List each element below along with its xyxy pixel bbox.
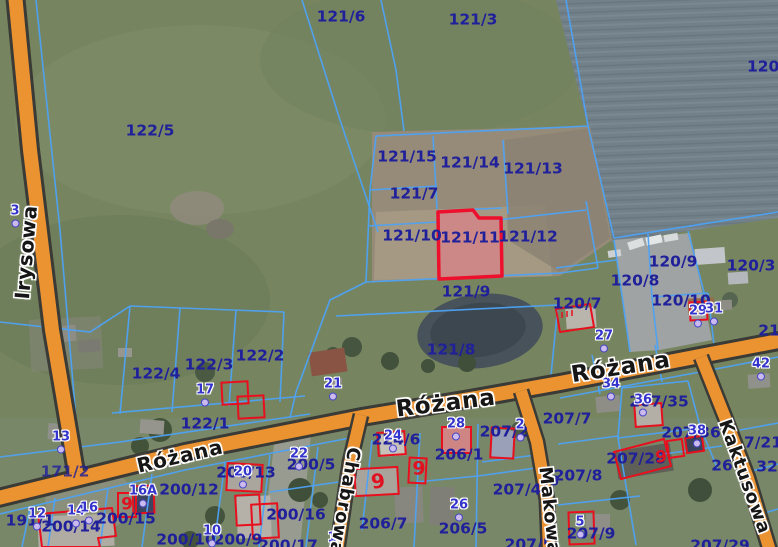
parcel-label[interactable]: 120/8 <box>611 273 660 289</box>
address-point-dot <box>693 440 701 448</box>
parcel-label[interactable]: 171/2 <box>41 464 90 480</box>
house-number-badge[interactable]: 16A <box>129 485 157 498</box>
house-number-badge[interactable]: 2 <box>515 419 524 432</box>
parcel-label[interactable]: 121/12 <box>498 229 558 245</box>
parcel-label[interactable]: 120/3 <box>727 258 776 274</box>
parcel-label[interactable]: 122/5 <box>126 123 175 139</box>
address-point-dot <box>239 481 247 489</box>
red-building-label: 9 <box>121 497 133 514</box>
parcel-label[interactable]: 121/10 <box>382 228 442 244</box>
address-point-dot <box>329 393 337 401</box>
parcel-label[interactable]: 207/7 <box>543 411 592 427</box>
parcel-label[interactable]: 207/9 <box>567 526 616 542</box>
parcel-label[interactable]: 7/21 <box>744 435 778 451</box>
house-number-badge[interactable]: 20 <box>234 466 252 479</box>
parcel-label[interactable]: 122/1 <box>181 416 230 432</box>
house-number-badge[interactable]: 27 <box>595 330 613 343</box>
parcel-label[interactable]: 21 <box>758 323 778 339</box>
cadastral-map-viewport[interactable]: 121/6121/3120/122/5121/15121/14121/13121… <box>0 0 778 547</box>
address-point-dot <box>33 523 41 531</box>
address-point-dot <box>201 399 209 407</box>
red-building-label: 9 <box>655 450 667 467</box>
address-point-dot <box>139 500 147 508</box>
parcel-label[interactable]: 206/7 <box>359 516 408 532</box>
address-point-dot <box>576 531 584 539</box>
address-point-dot <box>295 463 303 471</box>
parcel-label[interactable]: 121/15 <box>377 149 437 165</box>
address-point-dot <box>72 520 80 528</box>
parcel-label[interactable]: 120/7 <box>553 296 602 312</box>
house-number-badge[interactable]: 38 <box>688 425 706 438</box>
parcel-label[interactable]: 122/2 <box>236 348 285 364</box>
map-labels-layer: 121/6121/3120/122/5121/15121/14121/13121… <box>0 0 778 547</box>
house-number-badge[interactable]: 28 <box>447 418 465 431</box>
address-point-dot <box>208 540 216 547</box>
parcel-label[interactable]: 200/17 <box>258 538 318 547</box>
parcel-label[interactable]: 207/8 <box>554 468 603 484</box>
parcel-label[interactable]: 206/1 <box>435 447 484 463</box>
house-number-badge[interactable]: 31 <box>705 303 723 316</box>
parcel-label[interactable]: 200/12 <box>159 482 219 498</box>
street-label: Różana <box>570 349 673 387</box>
parcel-label[interactable]: 122/4 <box>132 366 181 382</box>
house-number-badge[interactable]: 12 <box>28 508 46 521</box>
parcel-label[interactable]: 200/16 <box>266 507 326 523</box>
parcel-label[interactable]: 121/7 <box>390 186 439 202</box>
house-number-badge[interactable]: 16 <box>80 502 98 515</box>
parcel-label[interactable]: 121/14 <box>440 155 500 171</box>
address-point-dot <box>639 409 647 417</box>
house-number-badge[interactable]: 10 <box>203 525 221 538</box>
address-point-dot <box>57 446 65 454</box>
street-label: Irysowa <box>12 204 40 300</box>
house-number-badge[interactable]: 24 <box>384 430 402 443</box>
address-point-dot <box>694 320 702 328</box>
parcel-label[interactable]: 32 <box>756 459 778 475</box>
house-number-badge[interactable]: 26 <box>450 499 468 512</box>
red-building-label: 9 <box>412 460 425 479</box>
address-point-dot <box>757 373 765 381</box>
parcel-label[interactable]: 122/3 <box>185 357 234 373</box>
parcel-label[interactable]: 207/4 <box>493 482 542 498</box>
parcel-label[interactable]: 206/5 <box>439 521 488 537</box>
parcel-label[interactable]: 207/29 <box>690 538 750 547</box>
parcel-label[interactable]: 121/6 <box>317 9 366 25</box>
house-number-badge[interactable]: 36 <box>634 394 652 407</box>
address-point-dot <box>516 434 524 442</box>
address-point-dot <box>452 433 460 441</box>
parcel-label[interactable]: 121/13 <box>503 161 563 177</box>
address-point-dot <box>389 445 397 453</box>
address-point-dot <box>455 514 463 522</box>
parcel-label[interactable]: 121/9 <box>442 284 491 300</box>
parcel-label[interactable]: 120/ <box>747 59 778 75</box>
parcel-label[interactable]: 121/11 <box>440 230 500 246</box>
house-number-badge[interactable]: 22 <box>290 448 308 461</box>
street-label: Różana <box>395 386 497 421</box>
house-number-badge[interactable]: 13 <box>52 431 70 444</box>
address-point-dot <box>607 393 615 401</box>
address-point-dot <box>710 318 718 326</box>
house-number-badge[interactable]: 21 <box>324 378 342 391</box>
parcel-label[interactable]: 121/3 <box>449 12 498 28</box>
red-building-label: 9 <box>370 470 387 492</box>
parcel-label[interactable]: 121/8 <box>427 342 476 358</box>
parcel-label[interactable]: 120/9 <box>649 254 698 270</box>
street-label: Różana <box>135 436 225 475</box>
house-number-badge[interactable]: 42 <box>752 358 770 371</box>
address-point-dot <box>600 345 608 353</box>
house-number-badge[interactable]: 5 <box>575 516 584 529</box>
address-point-dot <box>85 517 93 525</box>
house-number-badge[interactable]: 17 <box>196 384 214 397</box>
